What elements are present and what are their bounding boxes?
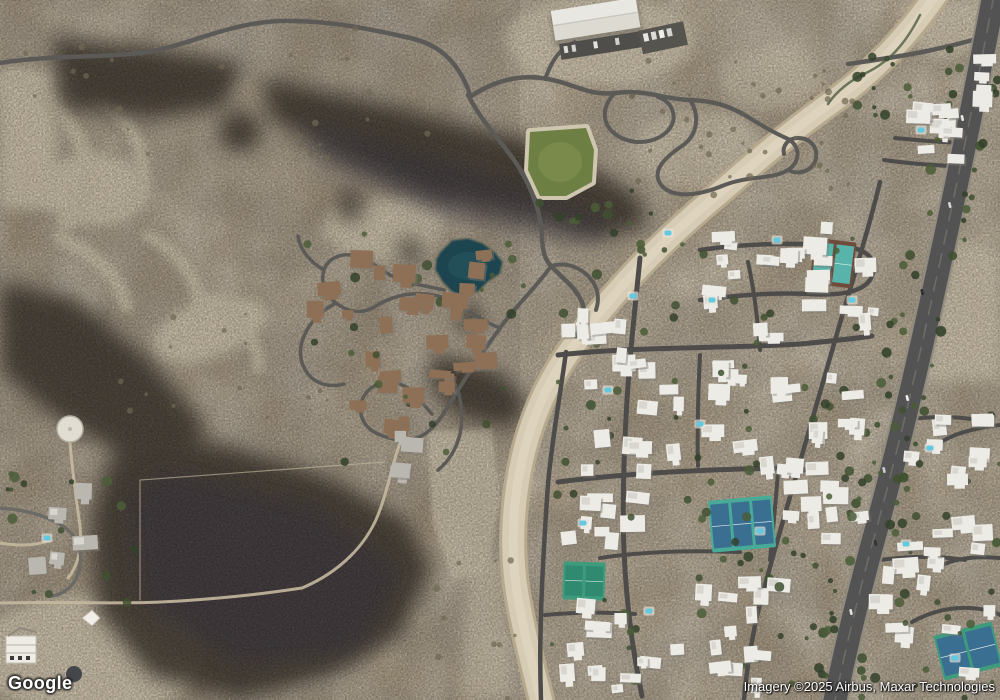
tennis-court: [708, 495, 776, 552]
tree: [559, 309, 568, 318]
tree: [731, 538, 739, 546]
tree: [171, 404, 175, 408]
tree: [435, 654, 441, 660]
tree: [441, 615, 447, 621]
tree: [123, 598, 132, 607]
tree: [890, 62, 895, 67]
swimming-pool: [603, 386, 614, 395]
building: [821, 533, 843, 547]
tree: [605, 201, 613, 209]
tree: [734, 61, 737, 64]
tree: [648, 149, 652, 153]
building: [628, 358, 648, 371]
tree: [324, 155, 330, 161]
building: [450, 310, 464, 324]
tree: [751, 82, 756, 87]
building: [467, 262, 487, 282]
tree: [813, 74, 817, 78]
tree: [884, 56, 890, 62]
tree: [535, 199, 544, 208]
tree: [759, 568, 763, 572]
tree: [629, 189, 634, 194]
building: [972, 524, 995, 543]
tree: [424, 131, 430, 137]
tree: [422, 260, 432, 270]
tree: [760, 93, 765, 98]
building: [923, 547, 942, 559]
building: [459, 283, 477, 297]
tree: [170, 314, 176, 320]
tree: [945, 68, 953, 76]
tree: [845, 466, 855, 476]
building: [560, 530, 579, 547]
tree: [892, 529, 900, 537]
tree: [794, 136, 798, 140]
tree: [58, 527, 65, 534]
map-viewport[interactable]: Google Imagery ©2025 Airbus, Maxar Techn…: [0, 0, 1000, 700]
tree: [872, 105, 876, 109]
building: [72, 535, 100, 553]
tree: [889, 375, 894, 380]
tree: [966, 620, 975, 629]
swimming-pool: [42, 534, 53, 543]
building: [620, 673, 643, 685]
tree: [373, 351, 380, 358]
tree: [78, 44, 85, 51]
tree: [969, 194, 975, 200]
building: [307, 301, 326, 323]
tree: [899, 328, 907, 336]
tree: [737, 560, 744, 567]
tree: [847, 512, 857, 522]
building: [453, 361, 480, 373]
tree: [828, 578, 833, 583]
tree: [873, 113, 878, 118]
building: [761, 255, 782, 268]
building: [783, 480, 810, 497]
tree: [843, 113, 848, 118]
tree: [936, 326, 947, 337]
tree: [649, 211, 653, 215]
building: [350, 250, 375, 271]
tree: [856, 496, 861, 501]
tree: [890, 422, 899, 431]
tree: [627, 628, 635, 636]
tree: [878, 471, 883, 476]
tree: [311, 339, 318, 346]
building: [973, 54, 998, 67]
tree: [812, 562, 818, 568]
tree: [706, 151, 712, 157]
tree: [326, 399, 329, 402]
tree: [988, 589, 994, 595]
tree: [110, 58, 114, 62]
tree: [595, 460, 600, 465]
tree: [775, 582, 785, 592]
tree: [640, 328, 648, 336]
tree: [10, 472, 20, 482]
tree: [699, 145, 704, 150]
tree: [728, 175, 732, 179]
tree: [819, 141, 823, 145]
tree: [868, 53, 876, 61]
tree: [900, 589, 910, 599]
tree: [575, 214, 582, 221]
tree: [730, 127, 736, 133]
tree: [857, 666, 866, 675]
tree: [116, 106, 123, 113]
tree: [684, 496, 692, 504]
building: [379, 316, 395, 336]
tree: [71, 69, 76, 74]
tree: [825, 88, 832, 95]
tree: [836, 452, 844, 460]
tree: [813, 164, 817, 168]
building: [947, 154, 966, 166]
tree: [850, 237, 854, 241]
tree: [674, 415, 679, 420]
tree: [885, 391, 892, 398]
tree: [244, 342, 247, 345]
building: [841, 390, 866, 403]
tree: [244, 313, 247, 316]
tree: [872, 461, 876, 465]
tree: [944, 614, 951, 621]
tree: [742, 363, 748, 369]
building: [906, 109, 932, 126]
tree: [102, 476, 112, 486]
tree: [642, 252, 647, 257]
tree: [255, 136, 262, 143]
building: [718, 592, 740, 605]
tree: [629, 94, 635, 100]
tree: [101, 571, 110, 580]
swimming-pool: [901, 540, 912, 549]
tree: [303, 240, 311, 248]
tree: [853, 324, 860, 331]
building: [464, 319, 490, 334]
building: [802, 299, 828, 313]
tree: [746, 173, 753, 180]
tree: [45, 590, 53, 598]
tree: [846, 182, 849, 185]
tree: [842, 98, 849, 105]
tree: [513, 634, 516, 637]
tree: [374, 380, 382, 388]
tree: [350, 323, 358, 331]
tree: [219, 64, 224, 69]
building: [581, 464, 595, 478]
swimming-pool: [695, 420, 706, 429]
tree: [746, 426, 752, 432]
tree: [912, 512, 920, 520]
tree: [117, 501, 126, 510]
tree: [893, 474, 902, 483]
tree: [829, 611, 834, 616]
tree: [904, 486, 910, 492]
tree: [763, 150, 768, 155]
tree: [742, 112, 745, 115]
swimming-pool: [644, 607, 655, 616]
tree: [627, 221, 632, 226]
tree: [852, 72, 862, 82]
tree: [684, 117, 690, 123]
swimming-pool: [755, 527, 766, 536]
tree: [7, 514, 17, 524]
building: [614, 613, 628, 628]
building: [613, 318, 628, 336]
tree: [720, 556, 727, 563]
tree: [744, 409, 749, 414]
tree: [810, 96, 814, 100]
building: [941, 127, 964, 140]
building: [752, 650, 773, 664]
tree: [501, 386, 506, 391]
tree: [69, 479, 74, 484]
tree: [885, 520, 895, 530]
tree: [962, 191, 968, 197]
building: [627, 441, 654, 458]
building: [350, 400, 369, 412]
building: [429, 369, 453, 381]
tree: [882, 348, 892, 358]
building: [782, 510, 801, 524]
tree: [33, 94, 37, 98]
tree: [433, 585, 440, 592]
tree: [916, 460, 924, 468]
tree: [899, 261, 908, 270]
tree: [845, 556, 855, 566]
swimming-pool: [925, 444, 936, 453]
tree: [265, 416, 269, 420]
tree: [955, 64, 964, 73]
tree: [341, 458, 349, 466]
building: [947, 474, 970, 489]
tree: [805, 636, 809, 640]
tree: [707, 478, 714, 485]
tree: [894, 500, 900, 506]
tree: [569, 218, 575, 224]
tree: [886, 321, 894, 329]
tree: [635, 178, 641, 184]
tree: [800, 553, 806, 559]
building: [28, 556, 49, 577]
building: [591, 667, 608, 683]
tree: [607, 417, 611, 421]
tree: [318, 389, 323, 394]
tree: [830, 625, 838, 633]
tree: [936, 317, 941, 322]
tree: [934, 599, 940, 605]
tree: [482, 420, 490, 428]
tree: [32, 590, 37, 595]
building: [972, 415, 996, 429]
map-attribution: Imagery ©2025 Airbus, Maxar Technologies: [744, 679, 995, 694]
tree: [927, 210, 933, 216]
tree: [429, 421, 436, 428]
swimming-pool: [707, 296, 718, 305]
tree: [222, 328, 227, 333]
tree: [146, 152, 150, 156]
swimming-pool: [847, 296, 858, 305]
tree: [822, 69, 826, 73]
tree: [911, 271, 919, 279]
tree: [696, 574, 703, 581]
building: [438, 381, 457, 395]
tree: [710, 192, 717, 199]
tree: [553, 490, 562, 499]
tree: [743, 552, 753, 562]
building: [712, 231, 738, 246]
building: [974, 72, 992, 84]
tennis-court: [562, 561, 605, 600]
tree: [671, 301, 680, 310]
tree: [876, 378, 886, 388]
tree: [680, 242, 684, 246]
tree: [318, 143, 322, 147]
tree: [913, 442, 918, 447]
building: [374, 265, 387, 281]
building: [399, 297, 424, 315]
building: [710, 639, 725, 657]
tree: [480, 288, 484, 292]
tree: [849, 98, 855, 104]
tree: [636, 240, 645, 249]
tree: [670, 313, 679, 322]
tree: [613, 386, 622, 395]
tree: [312, 120, 319, 127]
tree: [697, 608, 707, 618]
tree: [505, 241, 512, 248]
tree: [309, 409, 312, 412]
tree: [825, 169, 830, 174]
tree: [828, 186, 833, 191]
tree: [911, 403, 918, 410]
google-watermark[interactable]: Google: [8, 673, 72, 694]
building: [968, 456, 988, 470]
swimming-pool: [628, 292, 639, 301]
tree: [817, 162, 823, 168]
tree: [491, 641, 497, 647]
tree: [457, 561, 462, 566]
swimming-pool: [772, 236, 783, 245]
tree: [825, 96, 831, 102]
tree: [307, 150, 314, 157]
tree: [83, 73, 89, 79]
tree: [872, 86, 876, 90]
building: [820, 222, 835, 237]
tree: [21, 480, 28, 487]
building: [970, 542, 987, 557]
tree: [120, 42, 125, 47]
tree: [672, 82, 675, 85]
swimming-pool: [916, 126, 927, 135]
tree: [627, 645, 632, 650]
tree: [365, 117, 369, 121]
tree: [908, 94, 913, 99]
tree: [923, 666, 930, 673]
tree: [306, 395, 311, 400]
tree: [352, 25, 358, 31]
tree: [345, 57, 350, 62]
building: [579, 496, 603, 514]
tree: [961, 218, 966, 223]
tree: [158, 365, 161, 368]
tree: [662, 247, 668, 253]
swimming-pool: [578, 519, 589, 528]
tree: [490, 273, 495, 278]
tree: [603, 209, 613, 219]
building: [625, 491, 652, 507]
building: [838, 419, 860, 430]
building: [604, 532, 621, 552]
building: [869, 594, 895, 614]
tree: [903, 620, 909, 626]
building: [805, 277, 831, 294]
building: [636, 464, 654, 482]
building: [934, 414, 953, 427]
building: [882, 566, 897, 587]
tree: [591, 203, 600, 212]
tree: [238, 75, 241, 78]
tree: [646, 58, 652, 64]
tree: [23, 51, 28, 56]
tree: [904, 436, 910, 442]
tree: [350, 273, 360, 283]
tree: [833, 589, 837, 593]
tree: [810, 623, 817, 630]
tree: [105, 310, 110, 315]
tree: [694, 454, 701, 461]
tree: [958, 631, 962, 635]
tree: [688, 93, 692, 97]
tree: [602, 598, 607, 603]
tree: [857, 653, 867, 663]
tree: [127, 408, 133, 414]
tree: [144, 392, 148, 396]
tree: [127, 128, 130, 131]
tree: [942, 512, 950, 520]
tree: [858, 478, 866, 486]
tree: [730, 296, 738, 304]
tree: [949, 90, 958, 99]
park-field: [528, 128, 594, 196]
tree: [443, 449, 450, 456]
tree: [926, 164, 937, 175]
tree: [296, 134, 302, 140]
building: [636, 400, 660, 418]
building: [805, 461, 831, 477]
tree: [766, 309, 774, 317]
tree: [747, 149, 752, 154]
tree: [289, 54, 293, 58]
tree: [550, 642, 554, 646]
tree: [508, 255, 517, 264]
tree: [753, 460, 760, 467]
tree: [948, 251, 957, 260]
tree: [660, 109, 665, 114]
tree: [826, 493, 832, 499]
tree: [131, 545, 139, 553]
building: [659, 384, 680, 396]
tree: [744, 465, 754, 475]
tree: [592, 269, 602, 279]
tree: [556, 380, 561, 385]
tree: [894, 598, 904, 608]
tree: [778, 633, 784, 639]
tree: [672, 378, 678, 384]
building: [932, 528, 955, 540]
